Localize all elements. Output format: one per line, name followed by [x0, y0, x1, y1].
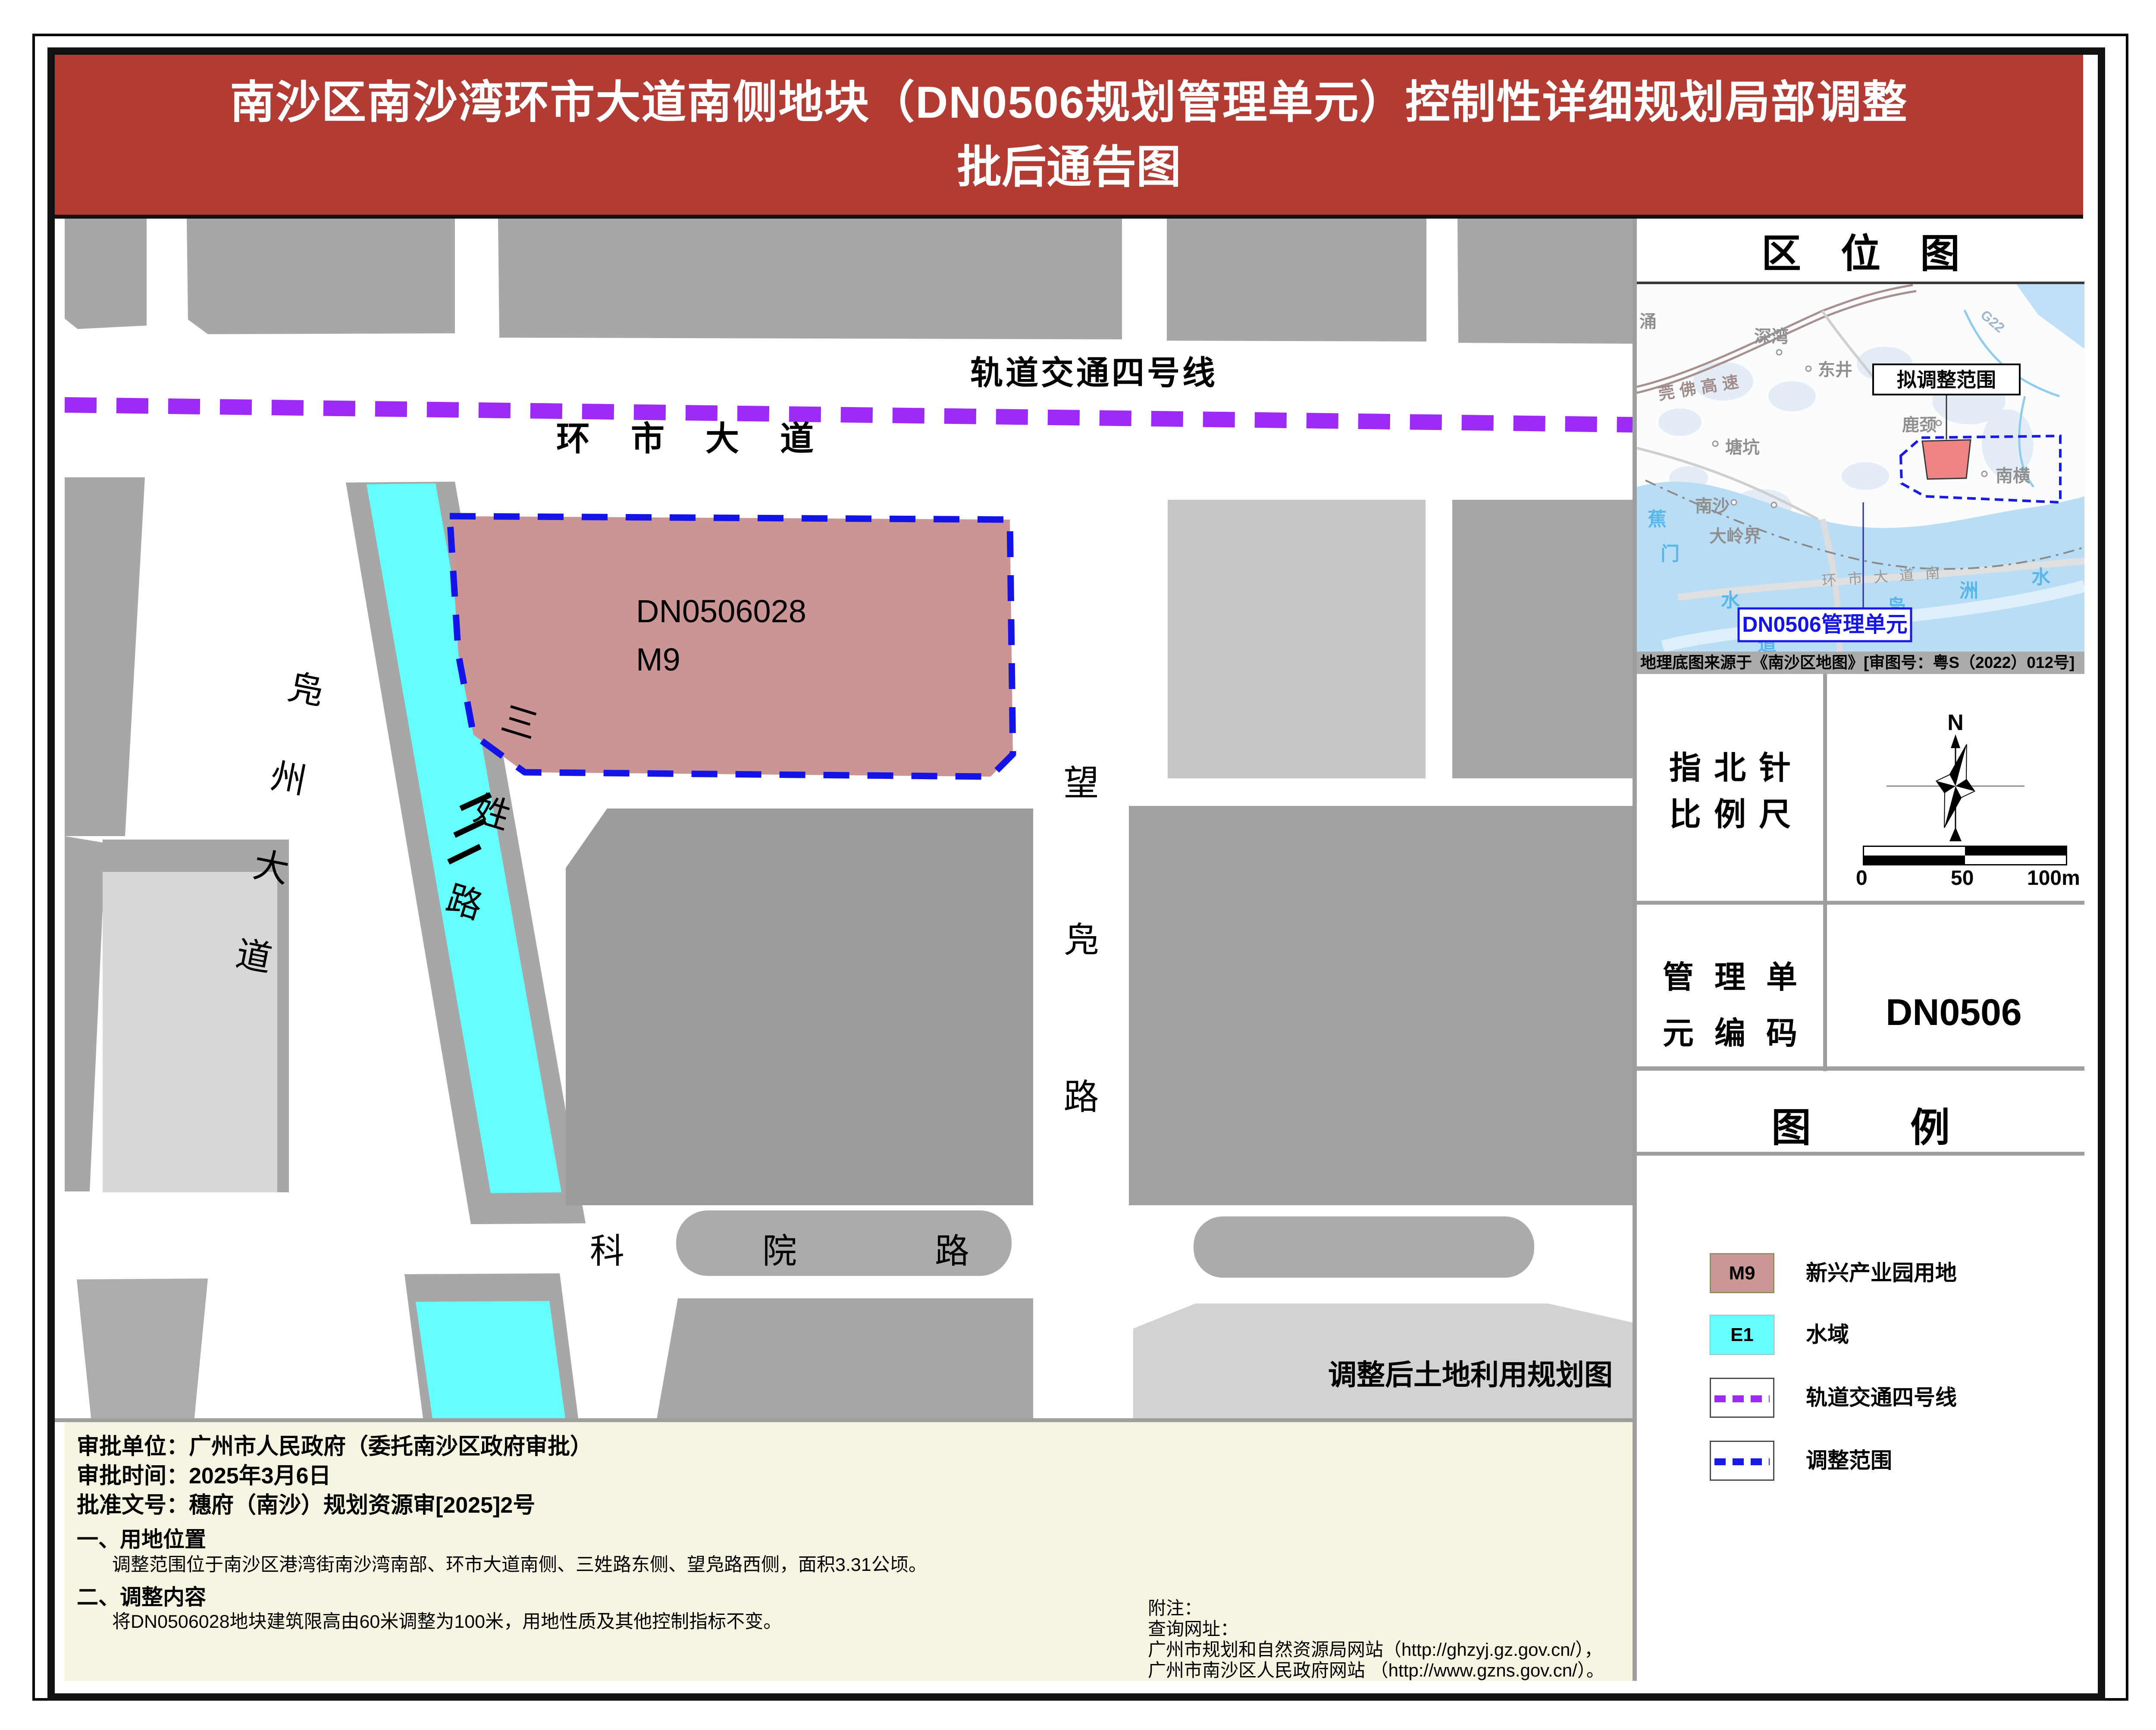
- locmap-title: 区位图: [1637, 219, 2084, 285]
- road-label-huanshi: 环市大道: [556, 412, 855, 460]
- road-label-keyuan: 科院路: [590, 1223, 1107, 1273]
- unit-label-text: DN0506管理单元: [1742, 612, 1907, 636]
- map-bottom-border: [55, 1418, 1637, 1422]
- sidebar: 区位图: [1633, 219, 2089, 1681]
- page-title-line1: 南沙区南沙湾环市大道南侧地块（DN0506规划管理单元）控制性详细规划局部调整: [230, 70, 1908, 135]
- footer-approval-date: 审批时间：2025年3月6日: [77, 1457, 331, 1490]
- legend-item-boundary: 调整范围: [1637, 1441, 2084, 1481]
- unit-code: DN0506: [1823, 991, 2084, 1034]
- compass-title-2: 比例尺: [1637, 789, 1823, 835]
- footer-note-3: 广州市南沙区人民政府网站 （http://www.gzns.gov.cn/）。: [1148, 1656, 1604, 1682]
- unit-title-1: 管理单: [1637, 952, 1823, 997]
- place-shenwan: 深湾: [1754, 327, 1789, 346]
- legend-swatch-m9: M9: [1710, 1253, 1774, 1293]
- scale-tick-50: 50: [1951, 866, 1974, 890]
- place-nansha: 南沙: [1695, 497, 1730, 516]
- north-blocks: [65, 219, 1633, 344]
- planning-notice-page: 南沙区南沙湾环市大道南侧地块（DN0506规划管理单元）控制性详细规划局部调整 …: [0, 0, 2156, 1730]
- compass-title-1: 指北针: [1637, 742, 1823, 788]
- legend-item-e1: E1 水域: [1637, 1315, 2084, 1355]
- parcel-code-label: DN0506028: [636, 593, 806, 630]
- parcel-use-label: M9: [636, 641, 680, 678]
- place-lujing: 鹿颈: [1902, 416, 1937, 435]
- legend-label-e1: 水域: [1806, 1315, 1849, 1355]
- land-use-map: 轨道交通四号线 环市大道 DN0506028 M9 凫州大道 三姓路 望凫路 科…: [65, 219, 1633, 1422]
- legend-label-m9: 新兴产业园用地: [1806, 1253, 1957, 1293]
- unit-title-2: 元编码: [1637, 1008, 1823, 1053]
- legend-swatch-e1: E1: [1710, 1315, 1774, 1355]
- footer-section2-body: 将DN0506028地块建筑限高由60米调整为100米，用地性质及其他控制指标不…: [112, 1607, 782, 1633]
- legend-label-metro: 轨道交通四号线: [1806, 1378, 1957, 1418]
- footer-approval-unit: 审批单位：广州市人民政府（委托南沙区政府审批）: [77, 1428, 592, 1460]
- svg-text:门: 门: [1661, 543, 1680, 564]
- footer-section1-body: 调整范围位于南沙区港湾街南沙湾南部、环市大道南侧、三姓路东侧、望凫路西侧，面积3…: [112, 1550, 927, 1576]
- location-inset-map: 涌 深湾 东井 塘坑 鹿颈 南横 南沙 大岭界 莞佛高速 G22 环市大道南 蕉…: [1637, 284, 2084, 652]
- metro-line-label: 轨道交通四号线: [970, 346, 1218, 394]
- place-tangkeng: 塘坑: [1725, 438, 1760, 457]
- legend-swatch-metro: [1710, 1378, 1774, 1418]
- callout-label: 拟调整范围: [1897, 369, 1996, 391]
- page-title-line2: 批后通告图: [957, 135, 1181, 200]
- place-yong: 涌: [1639, 312, 1657, 331]
- legend-dash-purple: [1714, 1395, 1770, 1402]
- divider-unit-legend: [1637, 1066, 2084, 1071]
- locmap-source-caption: 地理底图来源于《南沙区地图》[审图号：粤S（2022）012号]: [1637, 652, 2084, 674]
- legend-swatch-boundary: [1710, 1441, 1774, 1481]
- place-nanheng: 南横: [1996, 467, 2030, 486]
- footer: 审批单位：广州市人民政府（委托南沙区政府审批） 审批时间：2025年3月6日 批…: [65, 1422, 1633, 1681]
- scale-bar: [1863, 846, 2067, 865]
- title-bar: 南沙区南沙湾环市大道南侧地块（DN0506规划管理单元）控制性详细规划局部调整 …: [55, 55, 2083, 219]
- place-dalingjie: 大岭界: [1709, 527, 1761, 546]
- adjust-parcel-red: [1922, 440, 1971, 479]
- scale-tick-100: 100m: [2027, 866, 2080, 890]
- compass-rose: N: [1827, 674, 2084, 842]
- divider-compass-unit: [1637, 901, 2084, 905]
- svg-text:水: 水: [2031, 567, 2051, 588]
- road-label-wangfu: 望凫路: [1052, 764, 1103, 1235]
- compass-north-label: N: [1947, 710, 1964, 735]
- legend-item-metro: 轨道交通四号线: [1637, 1378, 2084, 1418]
- legend-item-m9: M9 新兴产业园用地: [1637, 1253, 2084, 1293]
- svg-text:蕉: 蕉: [1648, 509, 1667, 530]
- footer-approval-doc: 批准文号：穗府（南沙）规划资源审[2025]2号: [77, 1487, 535, 1519]
- place-dongjing: 东井: [1818, 360, 1852, 379]
- svg-text:洲: 洲: [1959, 580, 1978, 602]
- map-caption: 调整后土地利用规划图: [1203, 1352, 1613, 1393]
- legend-label-boundary: 调整范围: [1806, 1441, 1892, 1481]
- footer-section1-title: 一、用地位置: [77, 1522, 206, 1553]
- svg-text:水: 水: [1721, 590, 1740, 611]
- divider-legend-items: [1637, 1152, 2084, 1156]
- scale-tick-0: 0: [1856, 866, 1868, 890]
- legend-title: 图例: [1637, 1096, 2084, 1153]
- legend-dash-blue: [1714, 1458, 1770, 1465]
